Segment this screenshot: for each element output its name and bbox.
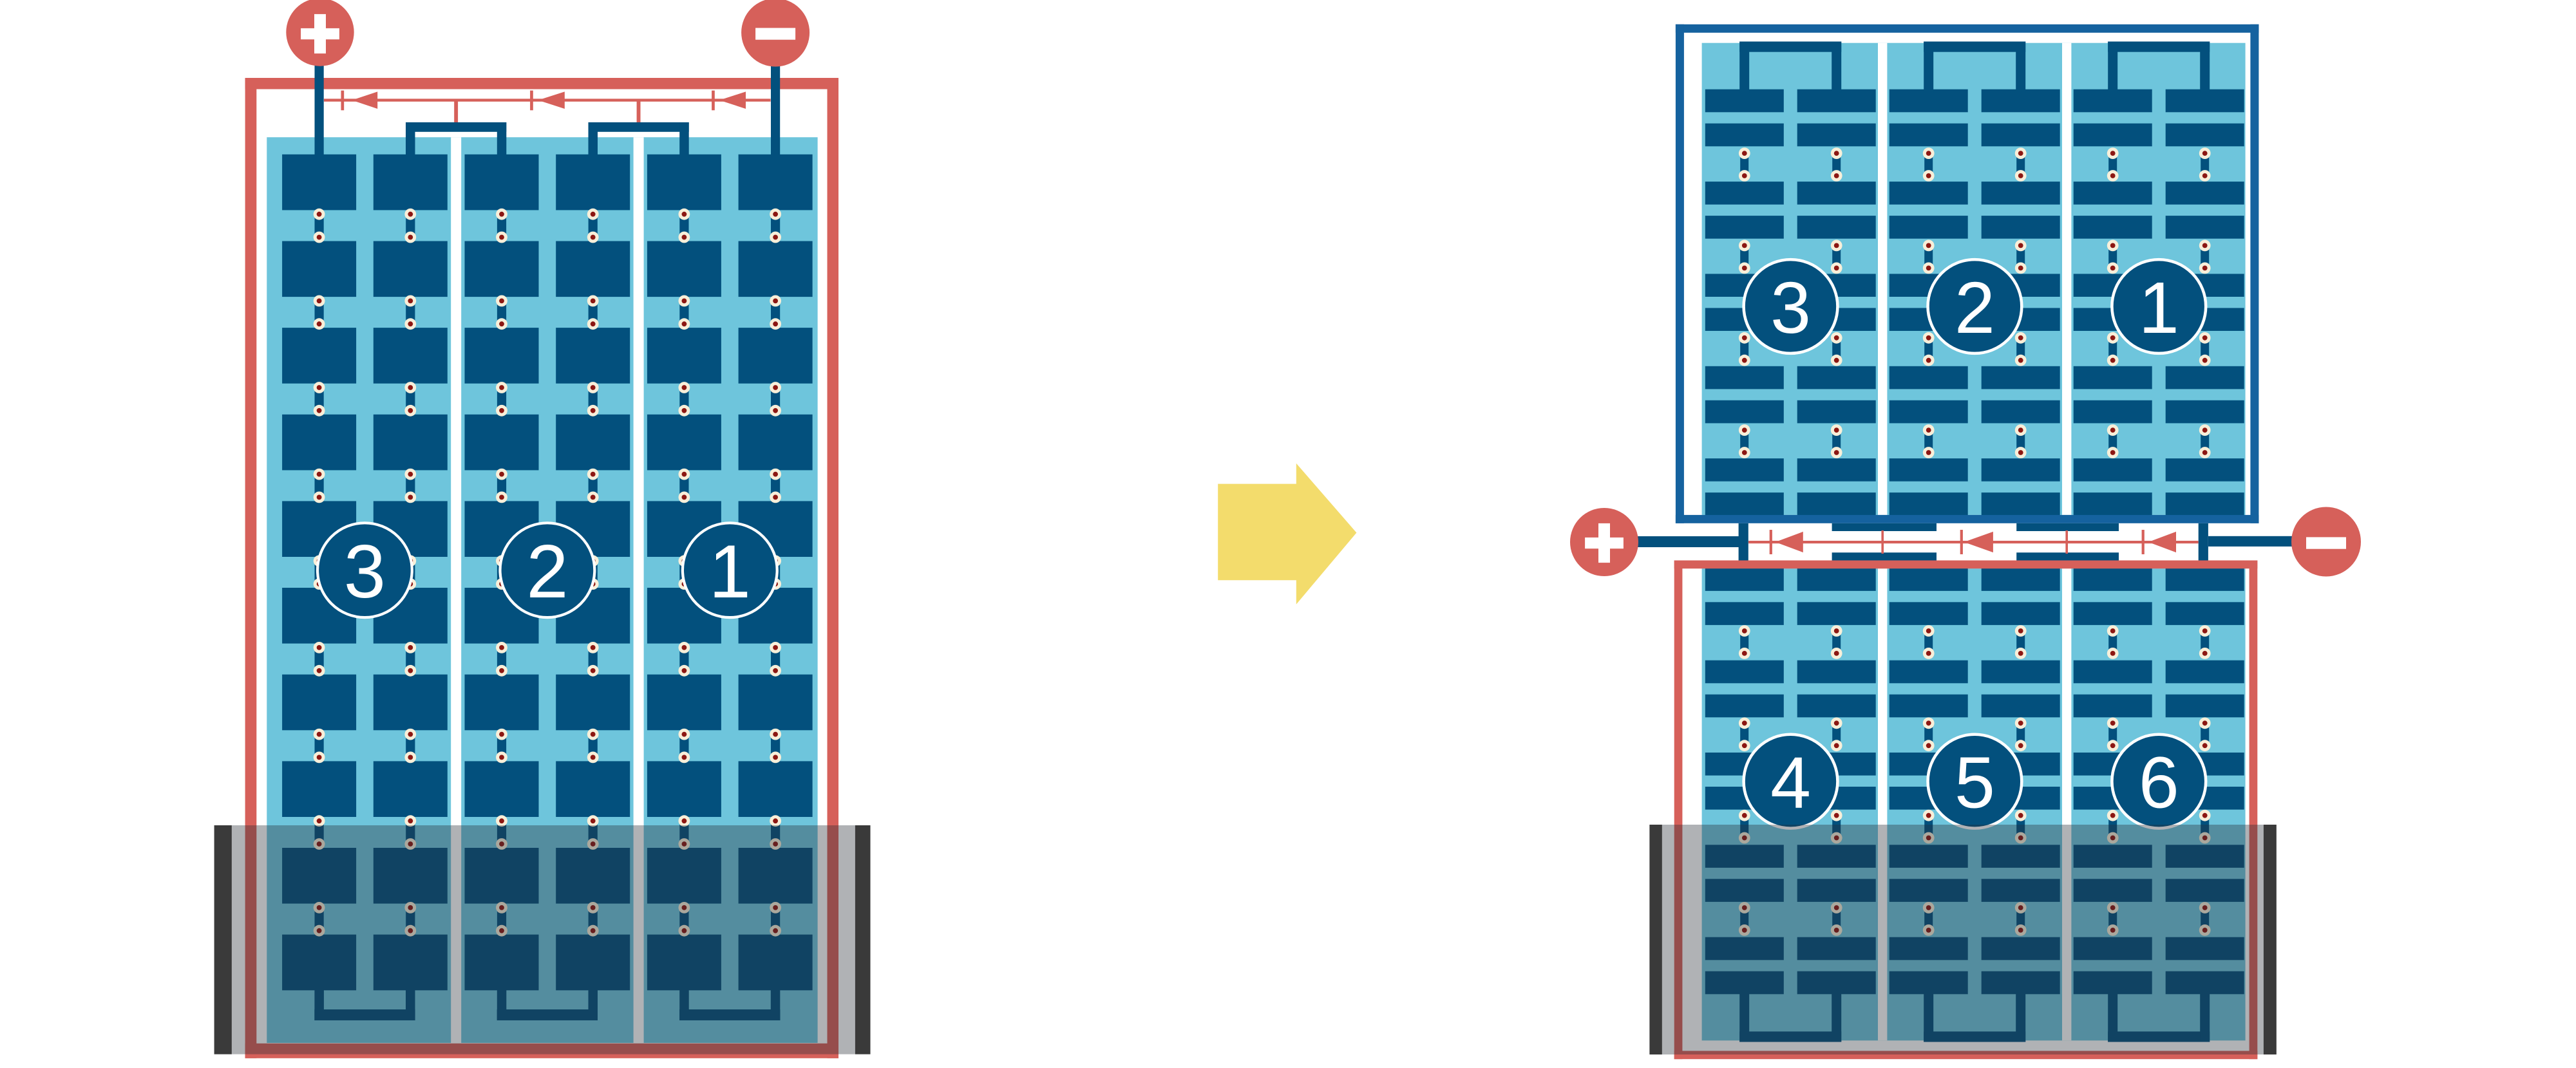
svg-text:2: 2 (526, 529, 568, 614)
svg-text:4: 4 (1770, 742, 1811, 823)
svg-text:1: 1 (709, 529, 751, 614)
svg-text:3: 3 (1770, 267, 1811, 348)
svg-text:2: 2 (1955, 267, 1995, 348)
svg-text:3: 3 (344, 529, 386, 614)
svg-text:6: 6 (2139, 742, 2179, 823)
svg-text:1: 1 (2139, 267, 2179, 348)
svg-text:5: 5 (1955, 742, 1995, 823)
